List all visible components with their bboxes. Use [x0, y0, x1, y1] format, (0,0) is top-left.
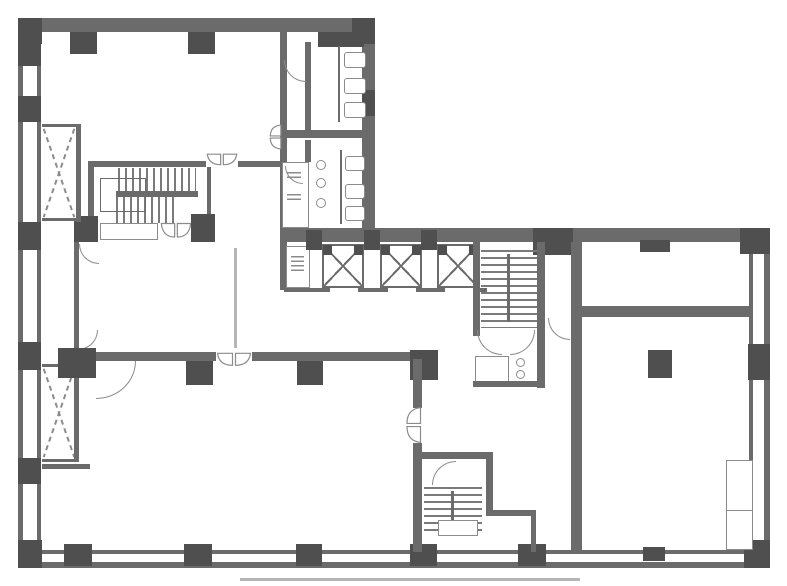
big-room-column	[297, 361, 323, 385]
stall-partition	[338, 46, 340, 122]
washroom-door-arc	[284, 60, 306, 82]
mid-stair-rail	[507, 254, 510, 322]
corner-column-band-right	[740, 228, 770, 254]
mid-stair-wall-right	[537, 242, 545, 388]
duct-wall	[76, 126, 81, 222]
urinal-fixture	[316, 178, 326, 188]
stair-enclosure-wall	[238, 161, 282, 167]
big-room-right-wall	[413, 359, 422, 408]
hall-double-door	[404, 406, 422, 444]
corner-column-top-left	[18, 18, 42, 44]
duct-x-brace-lower	[42, 366, 76, 460]
duct-cap	[42, 459, 79, 462]
lobby-partition-line	[234, 248, 237, 348]
big-room-door-arc	[96, 361, 136, 399]
upper-stair-handrail	[100, 178, 146, 212]
bottom-wall-column	[64, 544, 92, 566]
stair-enclosure-wall	[88, 161, 206, 167]
mid-stair-door-arc	[477, 330, 502, 355]
big-room-column	[186, 361, 213, 385]
bottom-stair-door-arc	[432, 461, 456, 485]
urinal-fixture	[316, 160, 326, 170]
duct-cap	[42, 218, 81, 221]
vestibule-right-wall	[531, 516, 536, 552]
right-rooms-left-wall	[571, 242, 582, 550]
left-wall-column	[18, 96, 41, 122]
toilet-fixture	[344, 102, 366, 118]
wc-fixture	[516, 358, 525, 367]
stall-partition	[340, 150, 342, 224]
big-room-column	[58, 348, 96, 378]
ev-band-column	[364, 230, 380, 250]
top-wall-column	[188, 32, 215, 54]
ev-hall-door-arc	[78, 330, 98, 350]
outer-wall-top	[18, 18, 375, 32]
left-wall-column	[18, 342, 41, 370]
mid-stair-door-arc	[510, 330, 535, 355]
outer-wall-right-outer	[764, 228, 770, 568]
duct-wall	[74, 366, 79, 462]
elevator-1	[322, 244, 364, 288]
left-wall-column	[18, 458, 41, 484]
bottom-wall-column	[184, 544, 212, 566]
bottom-wall-column	[296, 544, 322, 566]
lobby-column	[191, 214, 215, 242]
toilet-partition-lower	[305, 140, 311, 162]
corner-column-bottom-left	[18, 540, 42, 568]
pipe-shaft-fixture	[291, 256, 304, 272]
right-wall-closet	[726, 510, 753, 550]
wc-fixture	[516, 370, 525, 379]
utility-block-wall	[473, 381, 545, 387]
stair-enclosure-stub	[207, 167, 211, 215]
washroom-double-door	[268, 124, 282, 150]
elevator-2	[380, 244, 422, 288]
duct-stub	[42, 464, 90, 469]
bottom-stair-landing	[438, 520, 478, 536]
ev-door-wall	[284, 288, 330, 292]
toilet-partition-upper	[305, 42, 311, 130]
toilet-fixture	[344, 52, 366, 68]
left-wall-column	[18, 222, 41, 250]
ev-band-column	[421, 230, 437, 250]
room-b-column	[648, 350, 672, 378]
room-a-notch-column	[640, 240, 670, 252]
ev-door-wall	[358, 288, 388, 292]
toilet-fixture	[344, 78, 366, 94]
urinal-fixture	[316, 198, 326, 208]
big-room-double-door	[216, 352, 252, 368]
sink-fixture	[287, 194, 301, 203]
toilet-fixture	[345, 206, 365, 221]
ev-hall-door-arc	[79, 244, 99, 264]
left-wall-column	[18, 42, 41, 66]
duct-cap	[42, 124, 81, 127]
outer-wall-bottom-outer	[18, 562, 770, 568]
right-wall-closet	[726, 460, 753, 511]
band-top-wall	[280, 228, 770, 242]
vestibule-top-wall	[486, 510, 536, 516]
top-wall-column	[70, 32, 97, 54]
bottom-stair-left-wall	[413, 459, 422, 552]
lobby-double-door	[160, 222, 192, 240]
ev-band-column	[306, 230, 322, 250]
print-artifact-line	[240, 578, 580, 581]
toilet-fixture	[345, 156, 365, 171]
stair-hall-double-door	[206, 153, 238, 167]
toilet-fixture	[345, 184, 365, 199]
mid-stair-wall-left	[473, 242, 480, 336]
duct-x-brace-upper	[42, 126, 76, 220]
corridor-door-arc	[548, 318, 570, 340]
floor-plan-canvas	[0, 0, 787, 586]
ev-door-wall	[416, 288, 445, 292]
lobby-counter	[100, 223, 158, 240]
toilet-block-divider	[283, 130, 375, 138]
right-wall-column	[748, 344, 770, 380]
bottom-stair-top-wall	[413, 452, 493, 459]
utility-room	[475, 356, 509, 382]
corner-column-top-right-upper	[352, 18, 375, 44]
bottom-wall-column-small	[643, 547, 665, 561]
bottom-stair-right-wall	[486, 459, 493, 515]
right-rooms-divider-wall	[571, 306, 749, 317]
